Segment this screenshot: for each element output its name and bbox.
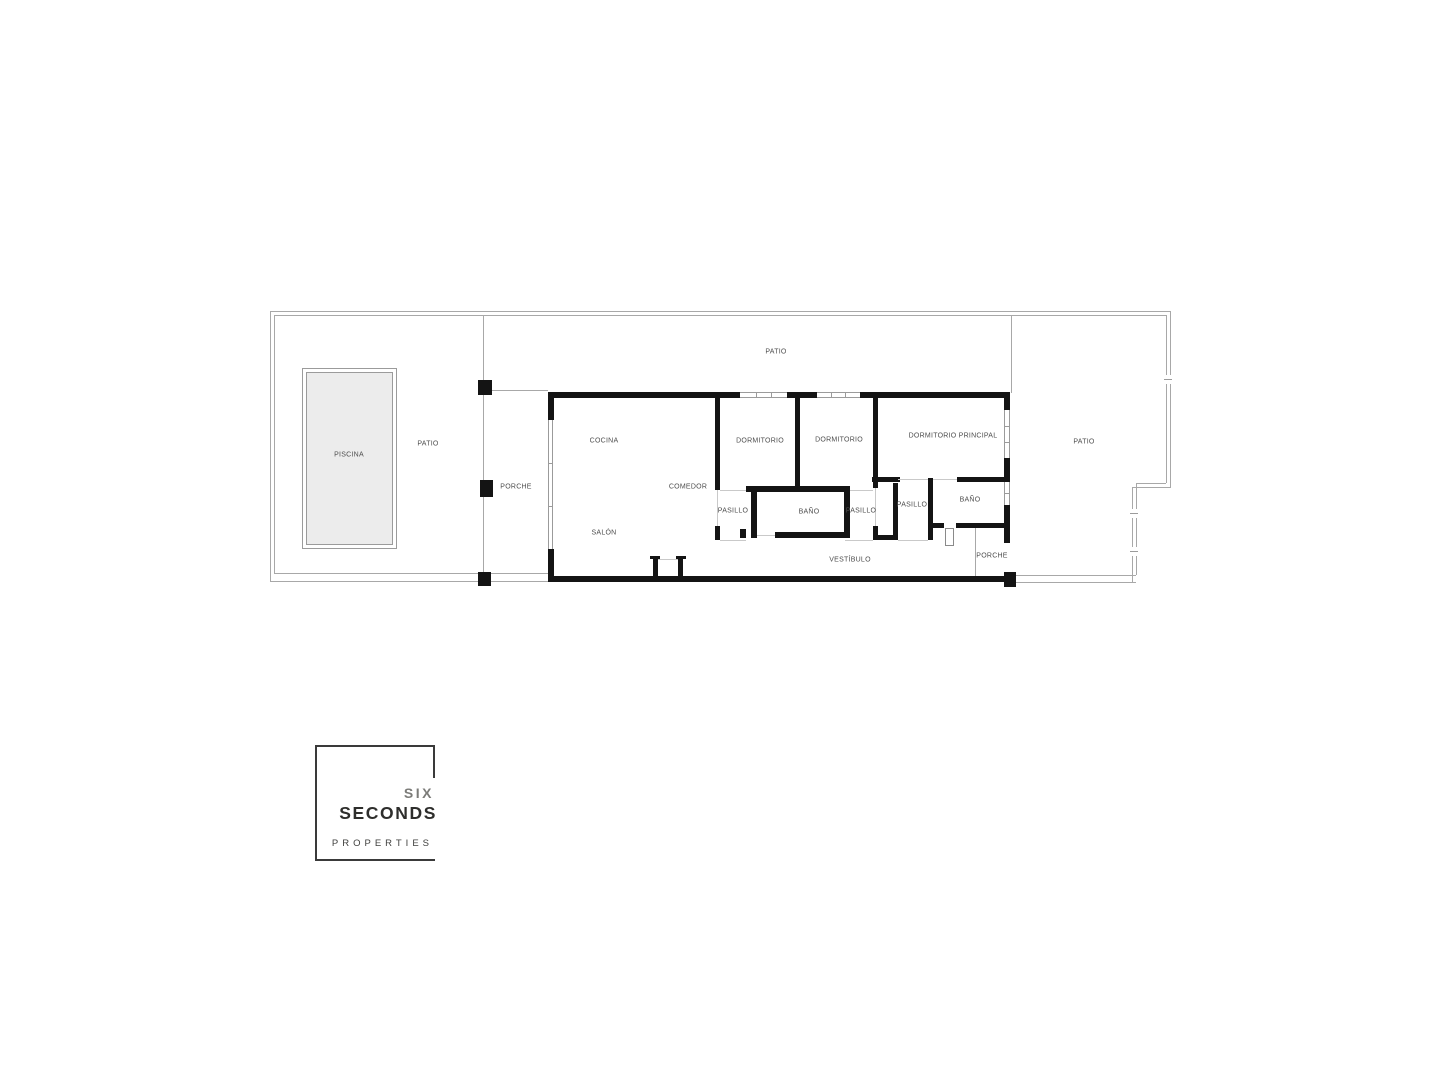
window <box>740 397 787 398</box>
wall-bottom <box>548 576 1008 582</box>
room-label-pasillo-2: PASILLO <box>846 508 876 515</box>
door-opening <box>845 540 873 541</box>
wall-top <box>787 392 817 398</box>
floorplan-page: PATIO PISCINA PORCHE PATIO COCINA COMEDO… <box>0 0 1440 1080</box>
room-label-dormitorio-principal: DORMITORIO PRINCIPAL <box>909 433 998 440</box>
room-label-bano-1: BAÑO <box>799 509 820 516</box>
door-opening <box>658 559 678 560</box>
patio-right-division-line <box>1011 315 1012 393</box>
wall-bathroom1-left <box>751 492 757 538</box>
window <box>1004 410 1005 458</box>
window <box>817 397 860 398</box>
wall-right <box>1004 505 1010 543</box>
window-mullion <box>756 392 757 398</box>
wall-interior <box>872 477 900 482</box>
wall-bathroom2-bottom <box>928 523 944 528</box>
room-label-porche-right: PORCHE <box>976 553 1007 560</box>
room-label-patio-left: PATIO <box>417 441 438 448</box>
logo-frame-right <box>433 745 435 778</box>
window-mullion <box>1004 493 1010 494</box>
boundary-left-outer <box>270 311 271 582</box>
wall-interior <box>795 392 800 491</box>
wall-bathroom1-bottom <box>775 532 850 538</box>
entry-jamb <box>653 558 658 576</box>
logo-word-six: SIX <box>404 785 434 801</box>
door-opening <box>757 535 775 536</box>
porch-pillar <box>480 480 493 497</box>
entry-jamb <box>678 558 683 576</box>
boundary-right-outer <box>1170 311 1171 487</box>
fence-post-tick <box>1130 513 1138 514</box>
door-opening <box>850 490 873 491</box>
porch-edge-line <box>483 315 484 574</box>
wall-bathroom1-top <box>746 486 850 492</box>
room-label-piscina: PISCINA <box>334 452 364 459</box>
logo-frame-top <box>315 745 435 747</box>
window-mullion <box>548 463 553 464</box>
wall-interior <box>715 526 720 540</box>
door-opening <box>720 540 746 541</box>
wall-stub <box>740 529 746 538</box>
logo-frame-bottom <box>315 859 435 861</box>
room-label-pasillo-1: PASILLO <box>718 508 748 515</box>
boundary-step-inner <box>1136 483 1166 484</box>
room-label-vestibulo: VESTÍBULO <box>829 557 871 564</box>
wall-principal-bottom <box>957 477 1004 482</box>
boundary-step-outer <box>1132 487 1171 488</box>
room-label-porche-left: PORCHE <box>500 484 531 491</box>
window <box>817 392 860 393</box>
door-opening <box>720 490 746 491</box>
wall-right <box>1004 392 1010 410</box>
logo-frame-left <box>315 745 317 861</box>
pool-water <box>306 372 393 545</box>
room-label-bano-2: BAÑO <box>960 497 981 504</box>
window-mullion <box>771 392 772 398</box>
window <box>740 392 787 393</box>
wall-interior <box>873 392 878 488</box>
wall-top <box>548 392 740 398</box>
fence-post-tick <box>1130 551 1138 552</box>
window-mullion <box>845 392 846 398</box>
window-mullion <box>831 392 832 398</box>
boundary-top-outer <box>270 311 1170 312</box>
boundary-bottom-left-inner <box>274 573 550 574</box>
room-label-comedor: COMEDOR <box>669 484 707 491</box>
window-mullion <box>1004 426 1010 427</box>
boundary-bottom-right-outer <box>1008 582 1136 583</box>
boundary-bottom-right-inner <box>1010 575 1136 576</box>
window <box>1009 410 1010 458</box>
wall-top <box>860 392 1010 398</box>
agency-logo: SIX SECONDS PROPERTIES <box>315 745 437 863</box>
room-label-dormitorio-1: DORMITORIO <box>736 438 784 445</box>
window-mullion <box>1004 442 1010 443</box>
room-label-patio-top: PATIO <box>765 349 786 356</box>
wall-left <box>548 392 554 420</box>
logo-word-seconds: SECONDS <box>339 803 437 824</box>
fence-post-tick <box>1164 379 1172 380</box>
porch-pillar <box>478 572 491 586</box>
corner-column <box>1004 572 1016 587</box>
boundary-left-inner <box>274 315 275 574</box>
window-mullion <box>548 506 553 507</box>
boundary-right-lower-outer <box>1132 487 1133 582</box>
room-label-patio-right: PATIO <box>1073 439 1094 446</box>
porch-pillar <box>478 380 492 395</box>
boundary-right-lower-inner <box>1136 483 1137 575</box>
glazed-door <box>548 420 549 549</box>
wall-right <box>1004 458 1010 482</box>
room-label-salon: SALÓN <box>592 530 617 537</box>
room-label-dormitorio-2: DORMITORIO <box>815 437 863 444</box>
wall-bathroom2-left <box>928 478 933 540</box>
room-label-cocina: COCINA <box>590 438 619 445</box>
door-opening <box>898 540 928 541</box>
wall-interior <box>715 392 720 490</box>
boundary-top-inner <box>274 315 1166 316</box>
boundary-right-inner <box>1166 315 1167 483</box>
boundary-bottom-left-outer <box>270 581 550 582</box>
wall-interior <box>878 535 898 540</box>
glazed-door <box>552 420 553 549</box>
wall-bathroom2-bottom <box>956 523 1004 528</box>
logo-word-properties: PROPERTIES <box>332 838 433 849</box>
room-label-pasillo-3: PASILLO <box>897 502 927 509</box>
entry-door <box>945 528 954 546</box>
swimming-pool <box>302 368 397 549</box>
porch-top-line <box>484 390 548 391</box>
wall-interior <box>893 483 898 540</box>
